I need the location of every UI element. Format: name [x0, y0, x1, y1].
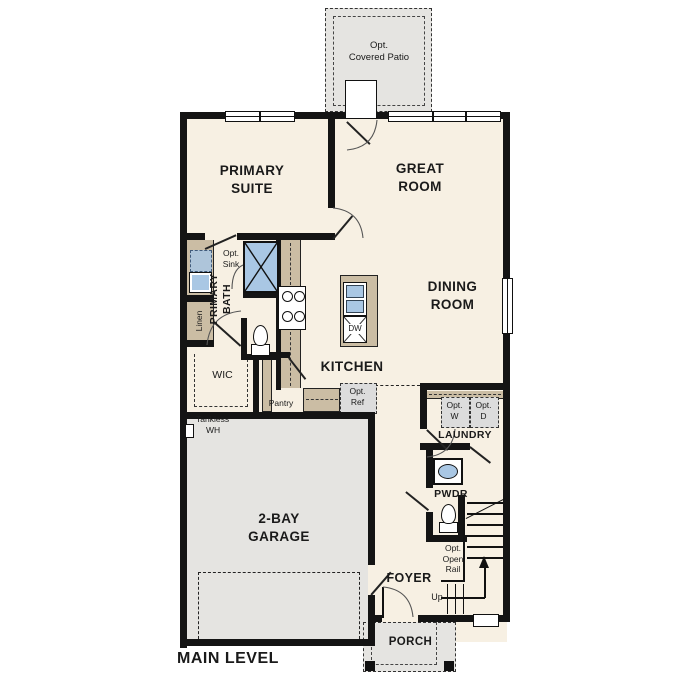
linen-label: Linen: [194, 304, 206, 338]
label-line: Linen: [194, 311, 205, 332]
optional-washer-label: Opt. W: [441, 400, 468, 422]
window: [466, 111, 501, 122]
wall: [503, 112, 510, 622]
patio-label: Opt. Covered Patio: [332, 40, 426, 65]
tankless-wh-label: Tankless WH: [196, 414, 248, 436]
label-line: PORCH: [383, 635, 438, 650]
wall: [180, 233, 205, 240]
label-line: WIC: [200, 369, 245, 383]
porch-post: [444, 661, 454, 671]
garage-label: 2-BAY GARAGE: [214, 510, 344, 545]
wall: [180, 112, 187, 648]
label-line: Opt.: [433, 543, 473, 554]
burner: [294, 311, 305, 322]
optional-dryer-label: Opt. D: [470, 400, 497, 422]
stair-rail: [441, 580, 465, 582]
wall: [328, 112, 335, 208]
burner: [282, 291, 293, 302]
label-line: Pantry: [260, 398, 302, 409]
laundry-label: LAUNDRY: [426, 429, 504, 443]
label-line: PRIMARY: [208, 274, 221, 325]
stair-winder: [455, 584, 456, 614]
label-line: Ref: [341, 397, 374, 408]
label-line: Tankless: [196, 414, 248, 425]
counter-centerline: [429, 394, 501, 395]
great-room-label: GREAT ROOM: [360, 160, 480, 195]
label-line: D: [470, 411, 497, 422]
label-line: MAIN LEVEL: [177, 649, 317, 670]
label-line: Open: [433, 554, 473, 565]
label-line: WH: [196, 425, 248, 436]
dishwasher: DW: [343, 316, 367, 343]
counter-centerline: [306, 399, 338, 400]
wall: [420, 383, 427, 429]
label-line: KITCHEN: [297, 358, 407, 376]
burner: [282, 311, 293, 322]
powder-sink: [438, 464, 458, 479]
door-swing-arc: [383, 587, 413, 617]
shower-x-icon: [245, 243, 277, 291]
up-arrow-line: [484, 568, 486, 598]
wall: [253, 352, 259, 412]
label-line: GARAGE: [214, 528, 344, 546]
pantry-label: Pantry: [260, 398, 302, 409]
toilet-bowl: [253, 325, 268, 346]
front-step: [473, 614, 499, 627]
foyer-label: FOYER: [374, 570, 444, 586]
window: [260, 111, 295, 122]
toilet-bowl: [441, 504, 456, 524]
label-line: Covered Patio: [332, 52, 426, 64]
door-swing-arc: [333, 208, 363, 238]
island-sink-basin: [346, 285, 364, 298]
optional-fridge-label: Opt. Ref: [341, 386, 374, 408]
label-line: PRIMARY: [192, 162, 312, 180]
label-line: Opt.: [332, 40, 426, 52]
wall: [368, 415, 375, 565]
up-arrow-head-icon: [479, 556, 489, 568]
water-heater: [185, 424, 194, 438]
wall: [368, 615, 382, 622]
label-line: PWDR: [428, 488, 474, 502]
label-line: Opt.: [441, 400, 468, 411]
up-label: Up: [426, 592, 448, 604]
window: [225, 111, 260, 122]
label-line: SUITE: [192, 180, 312, 198]
label-line: BATH: [221, 274, 234, 325]
wall: [420, 383, 503, 390]
dining-room-label: DINING ROOM: [395, 278, 510, 313]
label-line: ROOM: [360, 178, 480, 196]
patio-landing: [345, 80, 377, 119]
window: [433, 111, 466, 122]
window: [388, 111, 433, 122]
archway-dashed: [375, 385, 420, 388]
garage-door-zone: [198, 572, 360, 639]
label-line: LAUNDRY: [426, 429, 504, 443]
counter-centerline: [290, 243, 291, 285]
kitchen-label: KITCHEN: [297, 358, 407, 376]
label-line: Up: [426, 592, 448, 604]
wic-label: WIC: [200, 369, 245, 383]
stair-tread: [467, 524, 503, 526]
wall: [180, 639, 375, 646]
dishwasher-label: DW: [347, 324, 363, 334]
porch-label: PORCH: [383, 635, 438, 650]
label-line: ROOM: [395, 296, 510, 314]
burner: [294, 291, 305, 302]
primary-bath-label: PRIMARY BATH: [207, 264, 235, 334]
label-line: FOYER: [374, 570, 444, 586]
island-sink-basin: [346, 300, 364, 313]
floor-plan: DW Opt. Covered Patio: [0, 0, 687, 687]
door-swing-arc: [347, 120, 377, 150]
base-counter: [303, 388, 340, 412]
label-line: DINING: [395, 278, 510, 296]
label-line: W: [441, 411, 468, 422]
powder-room-label: PWDR: [428, 488, 474, 502]
stair-tread: [467, 535, 503, 537]
primary-suite-label: PRIMARY SUITE: [192, 162, 312, 197]
label-line: Opt.: [341, 386, 374, 397]
label-line: 2-BAY: [214, 510, 344, 528]
porch-post: [365, 661, 375, 671]
label-line: GREAT: [360, 160, 480, 178]
label-line: Opt.: [470, 400, 497, 411]
wall: [237, 233, 335, 240]
label-lines: PRIMARY BATH: [208, 274, 233, 325]
main-level-title: MAIN LEVEL: [177, 649, 317, 670]
stair-winder: [463, 584, 464, 614]
label-line: Opt.: [213, 248, 249, 259]
